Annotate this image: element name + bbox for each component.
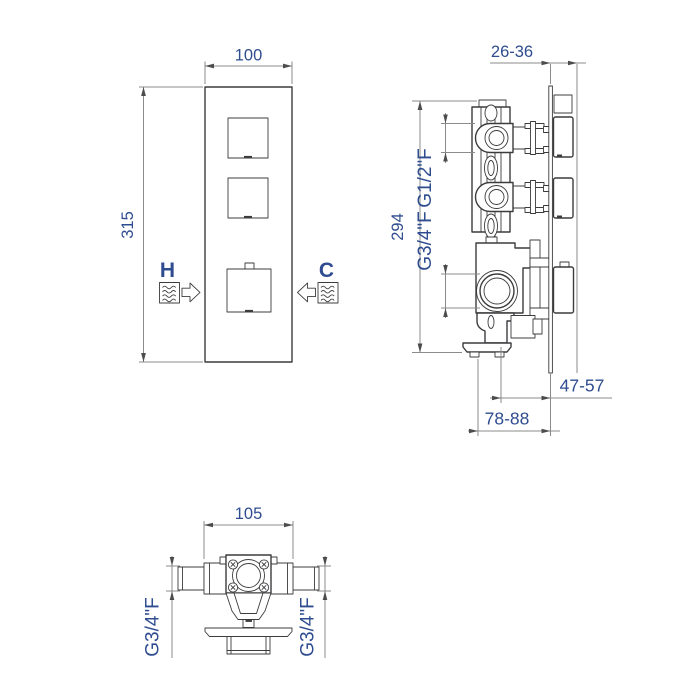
side-top-port-size-label: G1/2"F bbox=[415, 148, 436, 208]
dim-top-port: G1/2"F bbox=[415, 113, 475, 208]
bottom-right-port-size-label: G3/4"F bbox=[298, 597, 319, 657]
bottom-outlet-flange bbox=[205, 628, 292, 637]
side-view: 26-36 294 G1/2"F G3/4"F bbox=[389, 43, 612, 436]
bottom-view: 105 G3/4"F G3/4"F bbox=[143, 505, 332, 658]
dim-bottom-width: 105 bbox=[204, 505, 293, 559]
bottom-left-port-size-label: G3/4"F bbox=[143, 597, 164, 657]
front-handle-1 bbox=[228, 118, 268, 158]
bottom-valve-body bbox=[220, 555, 277, 628]
cold-inlet-indicator: C bbox=[298, 259, 339, 303]
flow-in-right-arrow-icon bbox=[182, 283, 200, 302]
front-view: 100 315 H C bbox=[119, 47, 338, 363]
bottom-left-port bbox=[204, 563, 226, 594]
bottom-right-port bbox=[271, 563, 293, 594]
front-width-dim-label: 100 bbox=[235, 47, 263, 65]
cold-label: C bbox=[319, 259, 334, 282]
side-knob-1 bbox=[554, 117, 574, 157]
side-diverter-valve-1 bbox=[475, 122, 550, 155]
side-diverter-valve-2 bbox=[475, 181, 550, 214]
side-thermostatic-valve bbox=[463, 237, 552, 357]
side-valve-assembly bbox=[463, 86, 574, 373]
side-bottom-port-size-label: G3/4"F bbox=[415, 211, 436, 271]
side-center-to-wall-dim-label: 47-57 bbox=[560, 376, 605, 396]
bottom-right-pipe bbox=[293, 567, 319, 590]
mounting-bracket bbox=[477, 313, 514, 343]
dim-front-width: 100 bbox=[205, 47, 292, 85]
front-height-dim-label: 315 bbox=[119, 211, 137, 239]
side-height-dim-label: 294 bbox=[389, 213, 407, 241]
hot-inlet-indicator: H bbox=[160, 259, 201, 303]
technical-drawing: 100 315 H C bbox=[0, 0, 700, 700]
cold-water-waves-icon bbox=[318, 283, 338, 304]
plate-fixing-block bbox=[554, 95, 572, 113]
front-handle-2 bbox=[228, 178, 268, 218]
side-depth-range-dim-label: 26-36 bbox=[491, 43, 533, 61]
bottom-outlet-side bbox=[511, 316, 535, 339]
side-knob-3 bbox=[554, 262, 574, 313]
wall-plate bbox=[549, 86, 553, 373]
side-body-depth-dim-label: 78-88 bbox=[485, 409, 530, 429]
hot-label: H bbox=[160, 259, 175, 282]
bottom-outlet-pipe bbox=[227, 637, 270, 655]
flow-in-left-arrow-icon bbox=[298, 283, 316, 302]
dim-bottom-left-port: G3/4"F bbox=[143, 556, 181, 658]
bottom-left-pipe bbox=[178, 567, 204, 590]
side-knob-2 bbox=[554, 178, 574, 218]
dim-bottom-port: G3/4"F bbox=[415, 211, 480, 318]
hot-water-waves-icon bbox=[160, 283, 180, 304]
bottom-width-dim-label: 105 bbox=[235, 505, 263, 523]
mounting-foot bbox=[463, 343, 511, 352]
front-handle-3 bbox=[227, 263, 271, 312]
dim-front-height: 315 bbox=[119, 87, 203, 362]
